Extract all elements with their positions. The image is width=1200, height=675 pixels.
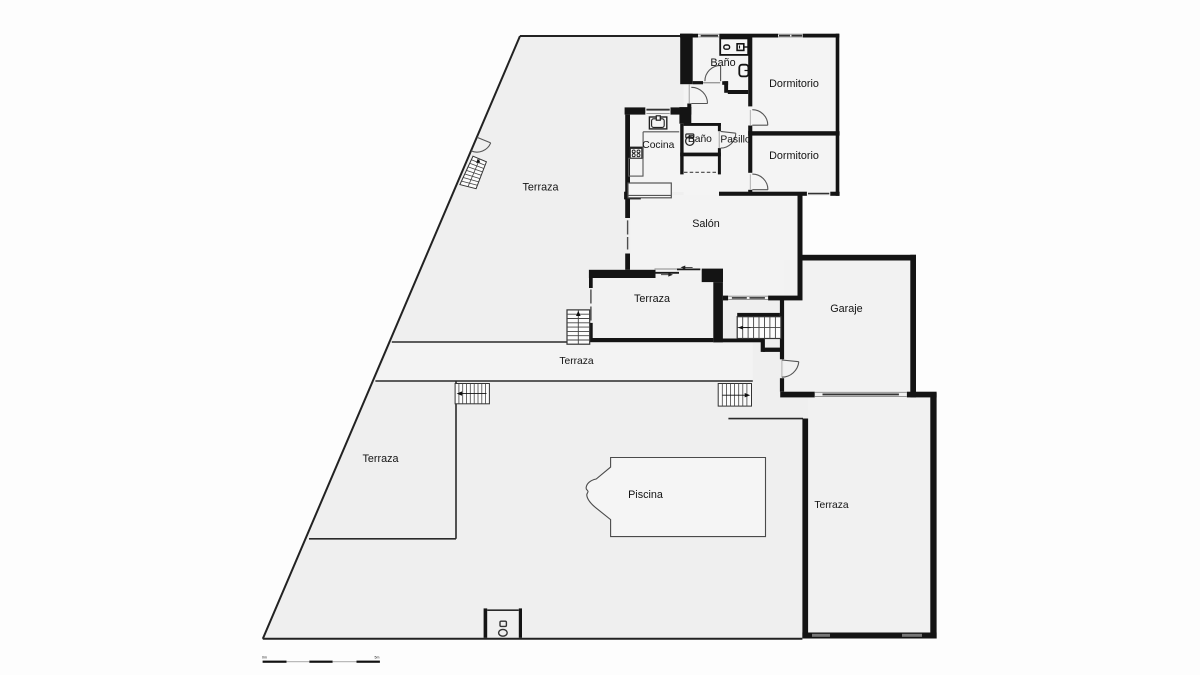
- svg-text:Terraza: Terraza: [634, 293, 670, 305]
- svg-text:Terraza: Terraza: [522, 182, 558, 194]
- svg-text:Terraza: Terraza: [559, 356, 594, 367]
- svg-text:Dormitorio: Dormitorio: [769, 150, 819, 162]
- svg-text:Salón: Salón: [692, 218, 720, 230]
- svg-text:Cocina: Cocina: [642, 140, 674, 151]
- svg-text:Pasillo: Pasillo: [720, 135, 751, 146]
- svg-text:Garaje: Garaje: [830, 303, 862, 315]
- svg-text:0m: 0m: [262, 656, 267, 660]
- svg-text:Dormitorio: Dormitorio: [769, 78, 819, 90]
- svg-text:Terraza: Terraza: [814, 500, 849, 511]
- svg-text:Baño: Baño: [710, 57, 735, 69]
- svg-text:5m: 5m: [375, 656, 380, 660]
- svg-text:Piscina: Piscina: [628, 489, 663, 501]
- svg-text:Baño: Baño: [688, 134, 712, 145]
- svg-text:Terraza: Terraza: [362, 453, 398, 465]
